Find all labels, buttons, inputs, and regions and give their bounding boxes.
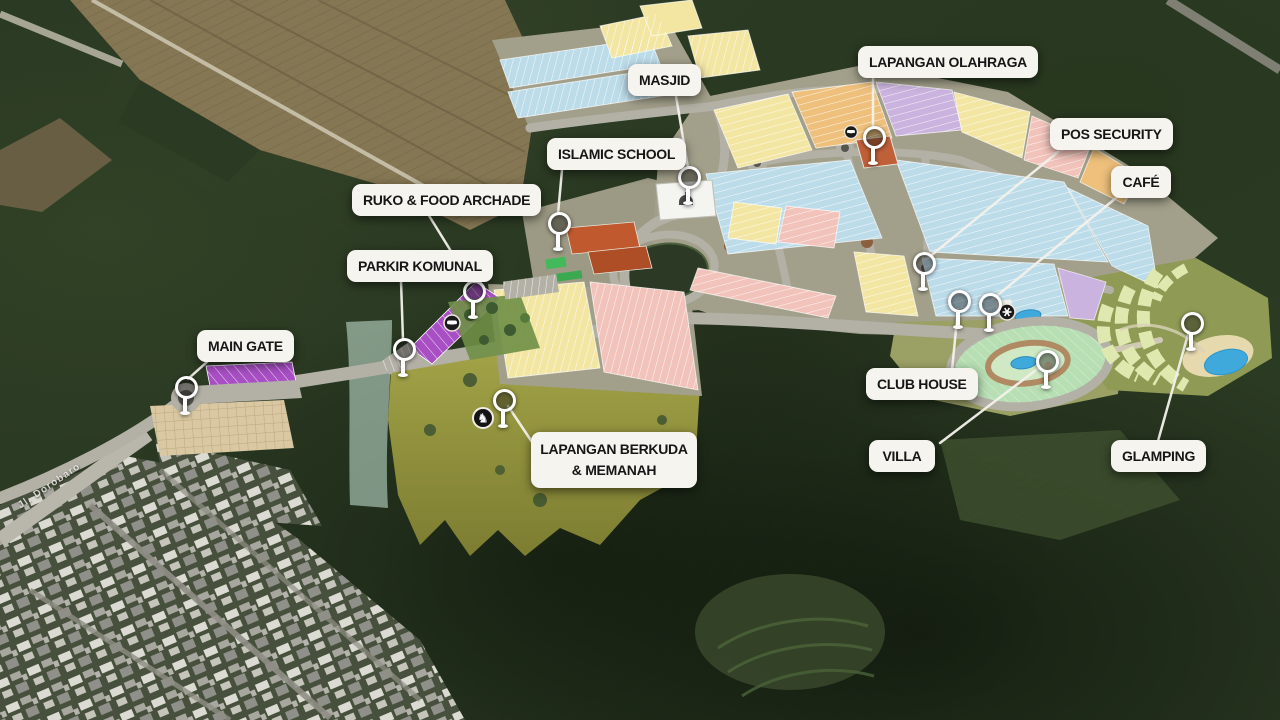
label-islamic-school: ISLAMIC SCHOOL — [547, 138, 686, 170]
label-lapangan-olahraga: LAPANGAN OLAHRAGA — [858, 46, 1038, 78]
label-pos-security: POS SECURITY — [1050, 118, 1173, 150]
site-plan-map: ♞ — [0, 0, 1280, 720]
forest-terraces — [695, 430, 1180, 696]
label-parkir-komunal: PARKIR KOMUNAL — [347, 250, 493, 282]
label-cafe: CAFÉ — [1111, 166, 1171, 198]
pin-lapangan-berkuda — [493, 389, 513, 428]
pin-cafe — [979, 293, 999, 332]
label-villa: VILLA — [869, 440, 935, 472]
pin-club-house — [948, 290, 968, 329]
car-icon — [845, 126, 858, 139]
creek — [346, 320, 392, 508]
label-masjid: MASJID — [628, 64, 701, 96]
pin-parkir-komunal — [393, 338, 413, 377]
label-glamping: GLAMPING — [1111, 440, 1206, 472]
pin-lapangan-olahraga — [863, 126, 883, 165]
pin-glamping — [1181, 312, 1201, 351]
pin-islamic-school — [548, 212, 568, 251]
pin-pos-security — [913, 252, 933, 291]
top-right-road — [1168, 0, 1280, 70]
car-icon — [444, 315, 460, 331]
label-ruko-food-archade: RUKO & FOOD ARCHADE — [352, 184, 541, 216]
pin-main-gate — [175, 376, 195, 415]
pin-masjid — [678, 166, 698, 205]
label-club-house: CLUB HOUSE — [866, 368, 978, 400]
label-lapangan-berkuda-memanah: LAPANGAN BERKUDA & MEMANAH — [531, 432, 697, 488]
masterplan-graphic: ♞ — [0, 0, 1280, 720]
label-main-gate: MAIN GATE — [197, 330, 294, 362]
pin-villa — [1036, 350, 1056, 389]
svg-text:♞: ♞ — [477, 412, 489, 427]
pin-ruko — [463, 280, 483, 319]
horse-icon: ♞ — [473, 408, 493, 428]
